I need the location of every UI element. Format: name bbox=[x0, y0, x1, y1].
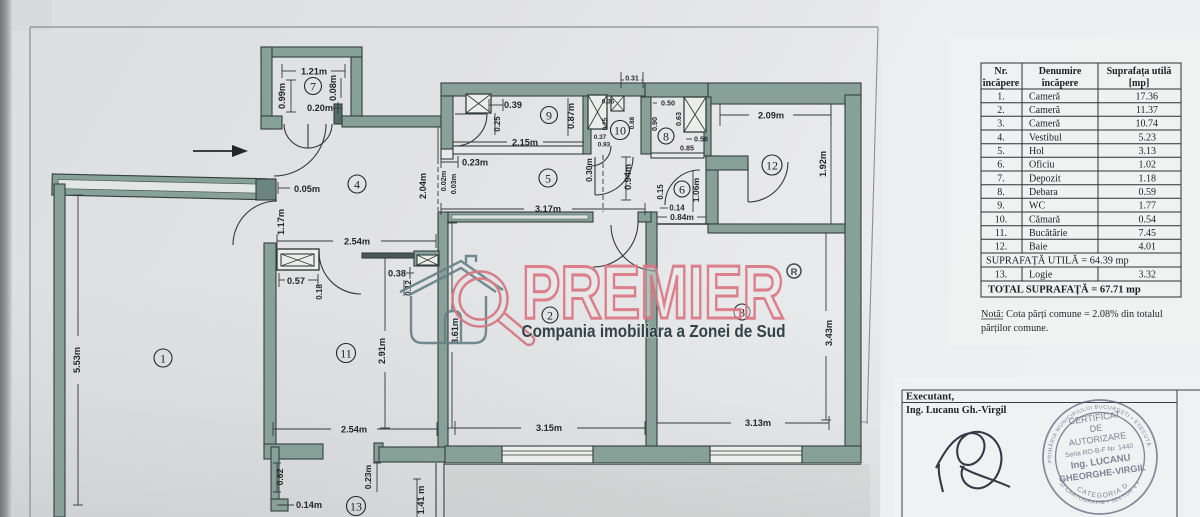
svg-text:0.23m: 0.23m bbox=[462, 158, 488, 168]
svg-text:Vestibul: Vestibul bbox=[1029, 133, 1062, 144]
svg-text:11.: 11. bbox=[995, 228, 1007, 239]
svg-text:Cameră: Cameră bbox=[1029, 105, 1061, 116]
svg-text:2.: 2. bbox=[997, 105, 1005, 116]
svg-text:Baie: Baie bbox=[1029, 242, 1048, 253]
svg-text:10.: 10. bbox=[995, 215, 1008, 226]
svg-text:0.94m: 0.94m bbox=[623, 164, 633, 190]
svg-text:Ing. Lucanu Gh.-Virgil: Ing. Lucanu Gh.-Virgil bbox=[906, 405, 1007, 416]
svg-text:Hol: Hol bbox=[1029, 146, 1044, 157]
svg-text:9.: 9. bbox=[997, 201, 1005, 212]
svg-text:2.54m: 2.54m bbox=[341, 425, 367, 435]
svg-text:Logie: Logie bbox=[1029, 270, 1053, 281]
svg-text:4: 4 bbox=[354, 178, 360, 192]
svg-text:7: 7 bbox=[310, 80, 316, 94]
svg-text:0.90: 0.90 bbox=[650, 117, 659, 131]
svg-text:0.87m: 0.87m bbox=[566, 103, 576, 129]
svg-text:13.: 13. bbox=[995, 270, 1008, 281]
svg-text:încăpere: încăpere bbox=[982, 78, 1020, 89]
svg-text:1.21m: 1.21m bbox=[301, 67, 327, 77]
svg-text:3.32: 3.32 bbox=[1139, 270, 1157, 281]
svg-text:3.17m: 3.17m bbox=[535, 204, 561, 214]
svg-text:Debara: Debara bbox=[1029, 187, 1058, 198]
svg-text:5.23: 5.23 bbox=[1139, 133, 1157, 144]
svg-text:0.37: 0.37 bbox=[594, 134, 607, 141]
svg-text:SUPRAFAȚĂ UTILĂ = 64.39 mp: SUPRAFAȚĂ UTILĂ = 64.39 mp bbox=[986, 255, 1129, 267]
svg-text:0.54: 0.54 bbox=[1139, 215, 1157, 226]
svg-text:Bucătărie: Bucătărie bbox=[1029, 228, 1068, 239]
svg-text:1.18: 1.18 bbox=[1139, 174, 1157, 185]
svg-text:2.09m: 2.09m bbox=[758, 111, 784, 121]
svg-text:0.15: 0.15 bbox=[656, 184, 665, 200]
svg-text:12: 12 bbox=[766, 159, 778, 173]
svg-text:0.88: 0.88 bbox=[629, 116, 636, 129]
svg-text:3.43m: 3.43m bbox=[824, 320, 834, 346]
svg-text:7.: 7. bbox=[997, 174, 1005, 185]
svg-text:8: 8 bbox=[663, 130, 669, 144]
svg-text:1.02: 1.02 bbox=[1139, 160, 1157, 171]
svg-text:3.15m: 3.15m bbox=[536, 423, 562, 433]
svg-text:DE: DE bbox=[1089, 422, 1103, 434]
svg-text:Depozit: Depozit bbox=[1029, 174, 1061, 185]
svg-text:0.30m: 0.30m bbox=[584, 158, 594, 182]
svg-text:11.37: 11.37 bbox=[1136, 105, 1158, 116]
svg-text:3.13: 3.13 bbox=[1139, 146, 1157, 157]
svg-text:[mp]: [mp] bbox=[1129, 78, 1150, 89]
svg-text:WC: WC bbox=[1029, 201, 1045, 212]
svg-text:Cameră: Cameră bbox=[1029, 119, 1061, 130]
svg-text:0.03m: 0.03m bbox=[449, 174, 458, 194]
svg-text:0.20m: 0.20m bbox=[307, 103, 333, 113]
svg-text:5.53m: 5.53m bbox=[72, 347, 82, 373]
svg-text:1.77: 1.77 bbox=[1139, 201, 1157, 212]
svg-text:1.41 m: 1.41 m bbox=[416, 486, 426, 515]
svg-text:0.58: 0.58 bbox=[694, 135, 708, 144]
svg-text:încăpere: încăpere bbox=[1041, 78, 1079, 89]
svg-text:2.15m: 2.15m bbox=[512, 138, 538, 148]
svg-text:părților comune.: părților comune. bbox=[981, 323, 1048, 334]
svg-text:10: 10 bbox=[614, 124, 626, 138]
svg-text:0.05m: 0.05m bbox=[294, 184, 320, 194]
svg-text:R: R bbox=[791, 267, 798, 278]
svg-text:Notă: Cota părți comune = 2.08: Notă: Cota părți comune = 2.08% din tota… bbox=[981, 309, 1163, 320]
svg-text:0.14m: 0.14m bbox=[296, 500, 322, 510]
svg-text:2.04m: 2.04m bbox=[418, 173, 428, 199]
svg-text:1.: 1. bbox=[997, 92, 1005, 103]
svg-text:4.: 4. bbox=[997, 133, 1005, 144]
svg-text:Cămară: Cămară bbox=[1029, 215, 1061, 226]
svg-text:17.36: 17.36 bbox=[1136, 92, 1159, 103]
svg-text:0.02m: 0.02m bbox=[439, 171, 448, 191]
svg-text:Executant,: Executant, bbox=[906, 392, 954, 403]
svg-text:0.50: 0.50 bbox=[661, 99, 675, 108]
svg-text:Nr.: Nr. bbox=[994, 66, 1008, 77]
svg-text:0.85: 0.85 bbox=[680, 144, 694, 153]
svg-text:0.99m: 0.99m bbox=[277, 83, 287, 109]
svg-text:0.57: 0.57 bbox=[287, 276, 305, 286]
svg-text:1: 1 bbox=[160, 352, 166, 366]
svg-text:1.17m: 1.17m bbox=[276, 209, 286, 235]
svg-text:8.: 8. bbox=[997, 187, 1005, 198]
svg-text:3.13m: 3.13m bbox=[745, 418, 771, 428]
svg-text:0.62: 0.62 bbox=[275, 468, 285, 485]
svg-text:0.25: 0.25 bbox=[602, 117, 609, 130]
svg-text:3.: 3. bbox=[997, 119, 1005, 130]
svg-text:0.63: 0.63 bbox=[674, 112, 683, 126]
svg-text:2.54m: 2.54m bbox=[344, 237, 370, 247]
svg-text:0.23m: 0.23m bbox=[363, 464, 373, 489]
svg-text:0.38: 0.38 bbox=[388, 269, 406, 279]
svg-text:0.18: 0.18 bbox=[315, 284, 324, 300]
svg-text:0.59: 0.59 bbox=[1139, 187, 1157, 198]
svg-text:9: 9 bbox=[546, 109, 552, 123]
svg-text:0.39: 0.39 bbox=[504, 100, 522, 110]
svg-text:11: 11 bbox=[340, 347, 352, 361]
svg-text:0.84m: 0.84m bbox=[670, 212, 694, 222]
svg-text:6.: 6. bbox=[997, 160, 1005, 171]
svg-text:1.92m: 1.92m bbox=[818, 151, 828, 177]
svg-text:7.45: 7.45 bbox=[1139, 228, 1157, 239]
svg-text:6: 6 bbox=[679, 183, 685, 197]
svg-text:0.08m: 0.08m bbox=[328, 75, 338, 101]
svg-text:1.06m: 1.06m bbox=[691, 177, 701, 202]
svg-text:10.74: 10.74 bbox=[1136, 119, 1159, 130]
svg-text:0.25: 0.25 bbox=[493, 116, 502, 132]
svg-text:2.91m: 2.91m bbox=[377, 338, 387, 364]
svg-text:Cameră: Cameră bbox=[1029, 92, 1061, 103]
svg-text:3.61m: 3.61m bbox=[450, 318, 460, 344]
svg-text:Compania imobiliara a Zonei de: Compania imobiliara a Zonei de Sud bbox=[522, 321, 786, 341]
svg-text:Suprafața utilă: Suprafața utilă bbox=[1107, 66, 1172, 77]
svg-text:5.: 5. bbox=[997, 146, 1005, 157]
svg-text:Oficiu: Oficiu bbox=[1029, 160, 1055, 171]
svg-text:13: 13 bbox=[350, 500, 362, 514]
svg-text:4.01: 4.01 bbox=[1139, 242, 1157, 253]
svg-text:0.31: 0.31 bbox=[625, 76, 639, 83]
svg-text:5: 5 bbox=[545, 172, 551, 186]
svg-text:0.35: 0.35 bbox=[602, 99, 615, 106]
svg-text:TOTAL SUPRAFAȚĂ = 67.71 mp: TOTAL SUPRAFAȚĂ = 67.71 mp bbox=[988, 284, 1141, 296]
svg-text:0.93: 0.93 bbox=[598, 142, 611, 149]
svg-text:Denumire: Denumire bbox=[1039, 66, 1082, 77]
svg-text:12.: 12. bbox=[995, 242, 1008, 253]
